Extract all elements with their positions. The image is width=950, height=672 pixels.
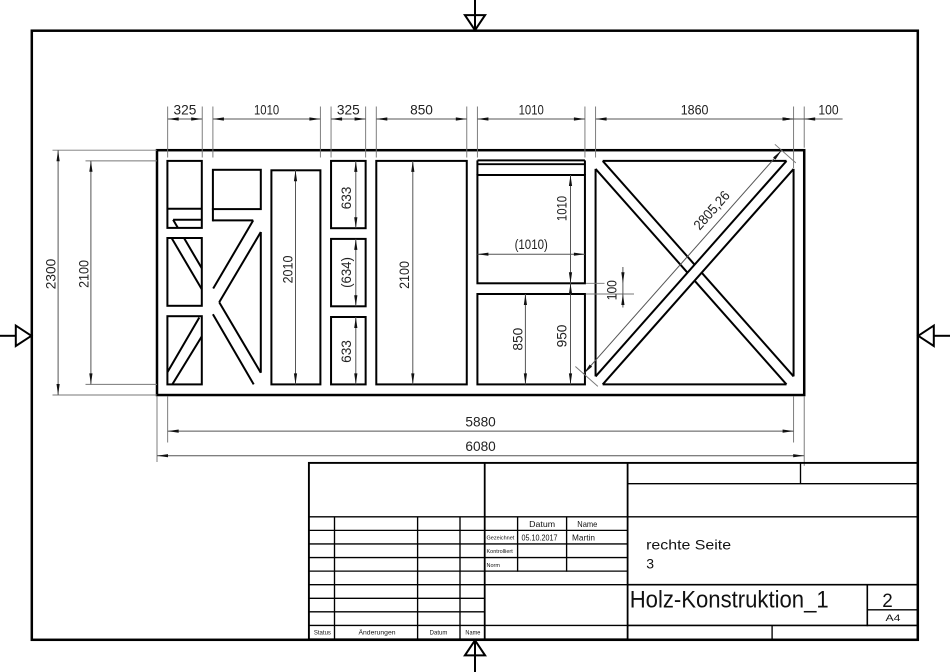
svg-text:633: 633 <box>338 340 354 363</box>
svg-text:325: 325 <box>174 101 197 117</box>
svg-text:Martin: Martin <box>572 532 595 542</box>
svg-text:Änderungen: Änderungen <box>359 630 396 637</box>
svg-text:950: 950 <box>553 324 569 347</box>
svg-text:850: 850 <box>509 328 525 351</box>
svg-text:2805,26: 2805,26 <box>690 187 733 233</box>
svg-text:633: 633 <box>338 186 354 209</box>
svg-text:(634): (634) <box>338 257 354 288</box>
svg-text:A4: A4 <box>886 613 901 624</box>
svg-text:100: 100 <box>604 280 620 300</box>
svg-text:5880: 5880 <box>465 414 496 430</box>
svg-text:2: 2 <box>882 591 893 612</box>
svg-text:2100: 2100 <box>75 260 91 288</box>
svg-text:Name: Name <box>465 631 481 637</box>
svg-text:1010: 1010 <box>553 196 569 221</box>
svg-text:2100: 2100 <box>396 261 412 289</box>
svg-text:1010: 1010 <box>519 101 544 117</box>
svg-text:(1010): (1010) <box>515 236 548 252</box>
svg-text:1010: 1010 <box>254 101 279 117</box>
svg-text:Datum: Datum <box>529 519 555 529</box>
svg-text:Name: Name <box>577 519 597 529</box>
svg-text:100: 100 <box>818 101 838 117</box>
svg-text:rechte Seite: rechte Seite <box>646 537 731 553</box>
svg-text:Kontrolliert: Kontrolliert <box>487 549 514 555</box>
svg-text:2010: 2010 <box>280 255 296 283</box>
svg-text:Gezeichnet: Gezeichnet <box>487 536 515 542</box>
svg-text:3: 3 <box>646 556 654 572</box>
svg-text:6080: 6080 <box>465 438 496 454</box>
svg-text:Holz-Konstruktion_1: Holz-Konstruktion_1 <box>630 586 829 613</box>
svg-text:05.10.2017: 05.10.2017 <box>522 532 558 542</box>
svg-text:Norm: Norm <box>487 563 501 569</box>
svg-text:850: 850 <box>410 101 433 117</box>
svg-text:325: 325 <box>337 101 360 117</box>
svg-text:Datum: Datum <box>430 631 448 637</box>
svg-text:1860: 1860 <box>681 101 709 117</box>
svg-text:2300: 2300 <box>43 259 59 290</box>
svg-text:Status: Status <box>314 631 331 637</box>
